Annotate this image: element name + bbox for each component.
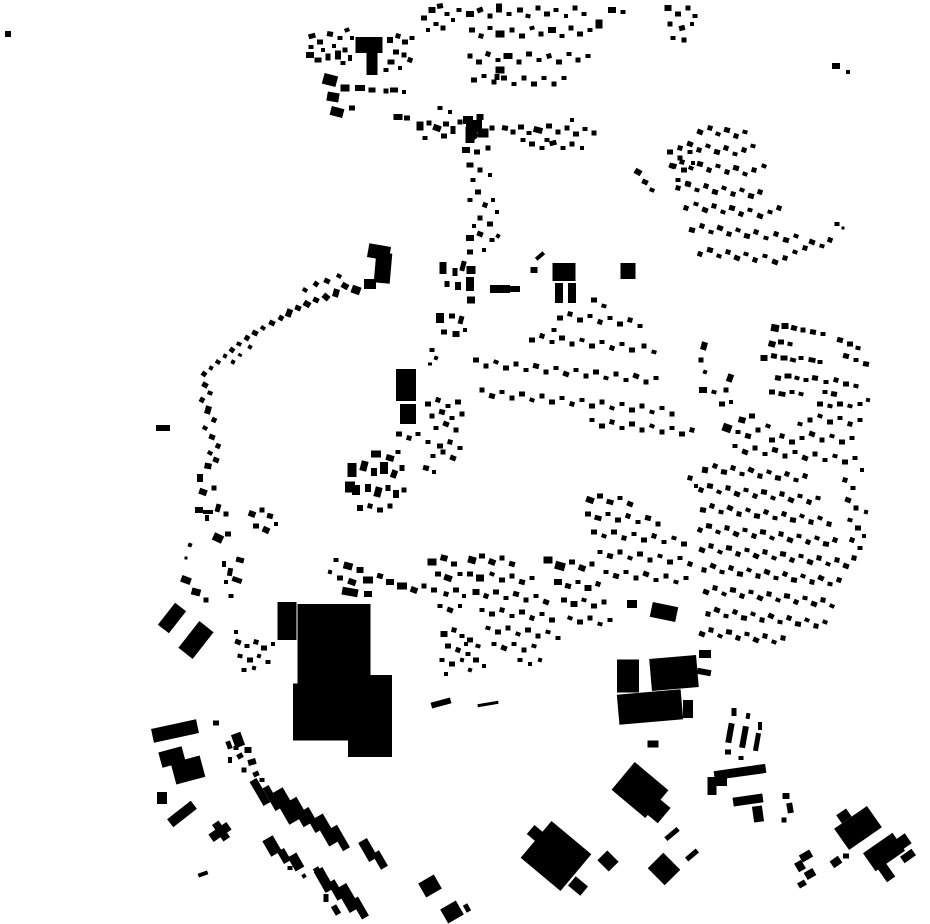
- building-footprint: [750, 143, 756, 148]
- building-footprint: [539, 333, 545, 339]
- building-footprint: [386, 485, 391, 491]
- building-footprint: [471, 78, 477, 83]
- building-footprint: [739, 187, 745, 192]
- building-footprint: [711, 189, 718, 195]
- building-footprint: [753, 733, 761, 752]
- building-footprint: [753, 446, 758, 451]
- building-footprint: [596, 20, 603, 29]
- building-footprint: [234, 639, 241, 646]
- building-footprint: [433, 355, 438, 360]
- building-footprint: [810, 601, 817, 608]
- building-footprint: [369, 88, 376, 93]
- building-footprint: [671, 535, 677, 540]
- building-footprint: [471, 178, 476, 182]
- building-footprint: [832, 63, 840, 69]
- building-footprint: [441, 330, 447, 335]
- building-footprint: [345, 482, 355, 493]
- building-footprint: [495, 233, 500, 238]
- building-footprint: [477, 701, 498, 708]
- building-footprint: [709, 503, 715, 509]
- building-footprint: [793, 599, 800, 606]
- building-footprint: [747, 466, 755, 473]
- building-footprint: [570, 142, 575, 147]
- building-footprint: [791, 577, 798, 583]
- building-footprint: [467, 163, 474, 168]
- building-footprint: [592, 131, 597, 136]
- building-footprint: [802, 245, 808, 251]
- building-footprint: [858, 546, 863, 550]
- building-footprint: [327, 31, 334, 37]
- building-footprint: [771, 555, 777, 560]
- building-footprint: [699, 387, 707, 393]
- building-footprint: [540, 146, 545, 150]
- building-footprint: [621, 263, 636, 279]
- building-footprint: [468, 198, 473, 202]
- building-footprint: [302, 300, 311, 309]
- building-footprint: [762, 549, 768, 555]
- building-footprint: [685, 849, 699, 862]
- building-footprint: [583, 127, 588, 131]
- building-footprint: [832, 453, 838, 458]
- building-footprint: [224, 580, 228, 584]
- building-footprint: [735, 227, 741, 232]
- building-footprint: [706, 167, 712, 173]
- building-footprint: [673, 579, 679, 584]
- building-footprint: [627, 600, 637, 608]
- building-footprint: [458, 604, 462, 608]
- building-footprint: [761, 163, 767, 168]
- building-footprint: [853, 456, 858, 460]
- building-footprint: [686, 6, 691, 11]
- building-footprint: [529, 338, 535, 343]
- building-footprint: [252, 666, 257, 671]
- building-footprint: [365, 484, 371, 492]
- building-footprint: [568, 283, 576, 303]
- building-footprint: [271, 642, 275, 646]
- building-footprint: [534, 594, 539, 598]
- building-footprint: [741, 615, 748, 621]
- building-footprint: [771, 259, 778, 266]
- building-footprint: [726, 629, 733, 635]
- building-footprint: [725, 723, 734, 744]
- building-footprint: [648, 558, 653, 563]
- building-footprint: [440, 554, 448, 562]
- building-footprint: [585, 512, 591, 517]
- building-footprint: [390, 88, 398, 93]
- building-footprint: [730, 587, 737, 593]
- building-footprint: [746, 713, 751, 720]
- building-footprint: [495, 210, 499, 214]
- building-footprint: [763, 452, 768, 456]
- footprint-map-svg: [0, 0, 930, 924]
- building-footprint: [792, 249, 798, 254]
- building-footprint: [691, 161, 695, 165]
- building-footprint: [778, 531, 784, 537]
- building-footprint: [776, 205, 782, 211]
- building-footprint: [537, 58, 542, 62]
- building-footprint: [802, 473, 808, 479]
- building-footprint: [248, 510, 257, 518]
- building-footprint: [728, 565, 734, 571]
- building-footprint: [679, 432, 685, 437]
- building-footprint: [804, 378, 809, 382]
- building-footprint: [167, 801, 197, 827]
- building-footprint: [797, 421, 803, 426]
- building-footprint: [626, 501, 633, 508]
- building-footprint: [756, 213, 763, 220]
- building-footprint: [752, 257, 758, 263]
- building-footprint: [586, 54, 591, 58]
- building-footprint: [521, 138, 526, 142]
- building-footprint: [767, 612, 775, 619]
- building-footprint: [496, 67, 505, 74]
- building-footprint: [568, 876, 588, 895]
- building-footprint: [328, 570, 333, 575]
- building-footprint: [608, 7, 616, 13]
- building-footprint: [252, 770, 260, 777]
- building-footprint: [772, 516, 778, 521]
- building-footprint: [580, 398, 585, 402]
- building-footprint: [585, 496, 595, 504]
- building-footprint: [808, 357, 816, 363]
- building-footprint: [802, 596, 808, 601]
- building-footprint: [529, 615, 535, 621]
- building-footprint: [544, 370, 549, 375]
- building-footprint: [435, 397, 441, 403]
- building-footprint: [766, 469, 772, 474]
- building-footprint: [215, 503, 222, 512]
- building-footprint: [529, 142, 535, 147]
- building-footprint: [457, 8, 462, 12]
- building-footprint: [687, 561, 693, 567]
- building-footprint: [251, 329, 259, 336]
- building-footprint: [782, 818, 787, 823]
- building-footprint: [394, 114, 403, 120]
- building-footprint: [474, 150, 480, 155]
- building-footprint: [198, 870, 209, 877]
- building-footprint: [751, 167, 757, 173]
- building-footprint: [500, 645, 507, 652]
- building-footprint: [238, 353, 243, 358]
- building-footprint: [440, 262, 447, 274]
- building-footprint: [561, 598, 567, 603]
- building-footprint: [660, 430, 665, 435]
- building-footprint: [492, 642, 497, 646]
- building-footprint: [529, 397, 535, 402]
- building-footprint: [585, 585, 592, 591]
- building-footprint: [340, 282, 349, 291]
- building-footprint: [432, 124, 442, 132]
- building-footprint: [538, 658, 543, 663]
- building-footprint: [712, 585, 718, 591]
- building-footprint: [816, 555, 822, 561]
- building-footprint: [451, 627, 457, 633]
- building-footprint: [597, 621, 603, 626]
- building-footprint: [476, 231, 483, 238]
- building-footprint: [548, 27, 556, 33]
- building-footprint: [294, 305, 301, 312]
- building-footprint: [355, 85, 365, 91]
- building-footprint: [624, 570, 629, 574]
- building-footprint: [725, 485, 731, 491]
- building-footprint: [729, 400, 733, 404]
- building-footprint: [313, 281, 320, 288]
- building-footprint: [429, 7, 436, 13]
- building-footprint: [593, 370, 599, 375]
- building-footprint: [526, 52, 532, 57]
- building-footprint: [222, 561, 226, 567]
- building-footprint: [732, 530, 740, 537]
- building-footprint: [225, 532, 231, 537]
- building-footprint: [742, 129, 748, 134]
- building-footprint: [517, 8, 523, 13]
- building-footprint: [309, 45, 314, 49]
- building-footprint: [847, 403, 853, 408]
- building-footprint: [768, 340, 776, 348]
- building-footprint: [624, 378, 629, 382]
- building-footprint: [501, 76, 507, 81]
- building-footprint: [336, 273, 342, 279]
- building-footprint: [455, 400, 461, 405]
- building-footprint: [517, 60, 522, 65]
- building-footprint: [490, 126, 495, 131]
- building-footprint: [554, 579, 562, 585]
- building-footprint: [809, 579, 815, 585]
- building-footprint: [402, 488, 407, 493]
- building-footprint: [842, 460, 848, 465]
- building-footprint: [676, 178, 681, 182]
- building-footprint: [824, 380, 829, 384]
- building-footprint: [540, 612, 545, 616]
- building-footprint: [510, 574, 515, 579]
- building-footprint: [730, 465, 736, 471]
- building-footprint: [598, 550, 603, 554]
- building-footprint: [697, 251, 703, 257]
- building-footprint: [476, 575, 484, 582]
- building-footprint: [245, 747, 252, 753]
- building-footprint: [570, 118, 574, 122]
- building-footprint: [798, 391, 804, 396]
- building-footprint: [648, 741, 659, 748]
- building-footprint: [416, 432, 421, 436]
- building-footprint: [556, 130, 561, 135]
- building-footprint: [794, 375, 800, 380]
- building-footprint: [468, 54, 473, 59]
- building-footprint: [830, 856, 843, 868]
- building-footprint: [466, 277, 474, 291]
- building-footprint: [629, 348, 635, 353]
- building-footprint: [227, 568, 233, 577]
- building-footprint: [739, 472, 745, 477]
- building-footprint: [479, 554, 485, 559]
- building-footprint: [597, 850, 618, 871]
- building-footprint: [799, 356, 804, 360]
- building-footprint: [739, 593, 745, 599]
- building-footprint: [207, 390, 213, 395]
- building-footprint: [699, 358, 704, 363]
- building-footprint: [491, 198, 495, 202]
- building-footprint: [437, 3, 444, 9]
- building-footprint: [524, 368, 529, 372]
- building-footprint: [606, 553, 613, 559]
- building-footprint: [549, 140, 557, 147]
- building-footprint: [577, 32, 583, 37]
- building-footprint: [573, 6, 578, 11]
- building-footprint: [482, 202, 488, 208]
- building-footprint: [317, 40, 323, 45]
- building-footprint: [350, 285, 361, 296]
- building-footprint: [632, 373, 639, 380]
- building-footprint: [612, 573, 619, 579]
- building-footprint: [426, 440, 431, 444]
- building-footprint: [641, 538, 647, 543]
- building-footprint: [406, 435, 412, 441]
- building-footprint: [343, 48, 348, 53]
- building-footprint: [343, 561, 354, 570]
- building-footprint: [769, 535, 775, 541]
- building-footprint: [716, 489, 722, 495]
- building-footprint: [698, 547, 705, 554]
- building-footprint: [853, 384, 859, 389]
- building-footprint: [717, 633, 723, 639]
- building-footprint: [779, 491, 785, 497]
- building-footprint: [332, 288, 340, 297]
- building-footprint: [467, 667, 472, 672]
- building-footprint: [847, 342, 853, 347]
- building-footprint: [688, 227, 695, 233]
- building-footprint: [460, 634, 465, 638]
- building-footprint: [417, 122, 424, 131]
- building-footprint: [348, 463, 357, 477]
- building-footprint: [431, 454, 436, 458]
- building-footprint: [621, 535, 627, 541]
- building-footprint: [836, 337, 843, 343]
- building-footprint: [556, 60, 562, 65]
- building-footprint: [705, 143, 711, 148]
- building-footprint: [709, 562, 717, 569]
- building-footprint: [237, 654, 243, 659]
- building-footprint: [373, 486, 382, 497]
- building-footprint: [512, 82, 517, 86]
- building-footprint: [331, 904, 341, 916]
- building-footprint: [576, 58, 581, 63]
- building-footprint: [726, 545, 733, 551]
- building-footprint: [808, 519, 814, 525]
- building-footprint: [203, 510, 213, 514]
- building-footprint: [400, 465, 405, 471]
- building-footprint: [667, 150, 673, 155]
- building-footprint: [831, 391, 838, 397]
- building-footprint: [488, 26, 493, 30]
- building-footprint: [589, 344, 595, 349]
- building-footprint: [846, 70, 850, 74]
- building-footprint: [595, 581, 601, 587]
- building-footprint: [315, 58, 322, 63]
- building-footprint: [207, 450, 213, 456]
- building-footprint: [573, 132, 579, 137]
- building-footprint: [447, 439, 453, 445]
- building-footprint: [837, 402, 843, 407]
- building-footprint: [467, 250, 473, 255]
- building-footprint: [441, 450, 446, 455]
- building-footprint: [434, 22, 439, 26]
- building-footprint: [855, 526, 861, 531]
- building-footprint: [719, 402, 725, 407]
- building-footprint: [651, 349, 657, 354]
- building-footprint: [482, 74, 487, 78]
- building-footprint: [482, 248, 486, 252]
- building-footprint: [843, 382, 849, 387]
- building-footprint: [348, 55, 352, 61]
- building-footprint: [199, 397, 206, 404]
- building-footprint: [786, 803, 794, 814]
- building-footprint: [701, 567, 707, 573]
- building-footprint: [860, 468, 864, 472]
- building-footprint: [554, 8, 559, 12]
- building-footprint: [437, 444, 443, 449]
- building-footprint: [813, 452, 818, 457]
- building-footprint: [564, 14, 568, 18]
- building-footprint: [682, 38, 687, 43]
- building-footprint: [496, 31, 505, 38]
- building-footprint: [721, 423, 732, 434]
- building-footprint: [640, 404, 645, 409]
- building-footprint: [387, 37, 393, 43]
- building-footprint: [702, 369, 707, 374]
- building-footprint: [808, 239, 815, 246]
- building-footprint: [723, 127, 730, 133]
- building-footprint: [458, 315, 465, 324]
- building-footprint: [713, 607, 720, 614]
- building-footprint: [766, 591, 772, 597]
- building-footprint: [335, 51, 341, 60]
- building-footprint: [699, 650, 711, 658]
- building-footprint: [322, 73, 338, 87]
- building-footprint: [402, 40, 408, 45]
- building-footprint: [518, 658, 523, 662]
- building-footprint: [702, 467, 709, 474]
- building-footprint: [717, 549, 723, 555]
- building-footprint: [442, 421, 449, 428]
- building-footprint: [736, 430, 741, 434]
- building-footprint: [726, 231, 732, 237]
- building-footprint: [430, 414, 435, 419]
- building-footprint: [638, 324, 643, 328]
- building-footprint: [451, 18, 455, 22]
- building-footprint-map[interactable]: [0, 0, 930, 924]
- building-footprint: [634, 576, 639, 581]
- building-footprint: [560, 396, 565, 400]
- building-footprint: [499, 607, 505, 613]
- building-footprint: [446, 607, 453, 614]
- building-footprint: [790, 357, 797, 362]
- building-footprint: [213, 721, 219, 726]
- building-footprint: [609, 419, 615, 425]
- building-footprint: [559, 336, 565, 341]
- building-footprint: [761, 355, 768, 361]
- building-footprint: [863, 361, 870, 367]
- building-footprint: [234, 746, 239, 750]
- building-footprint: [785, 374, 792, 379]
- building-footprint: [711, 389, 717, 394]
- building-footprint: [556, 636, 561, 640]
- building-footprint: [790, 390, 795, 394]
- building-footprint: [799, 513, 805, 519]
- building-footprint: [767, 209, 773, 214]
- building-footprint: [440, 901, 464, 924]
- building-footprint: [600, 340, 605, 344]
- building-footprint: [694, 187, 700, 192]
